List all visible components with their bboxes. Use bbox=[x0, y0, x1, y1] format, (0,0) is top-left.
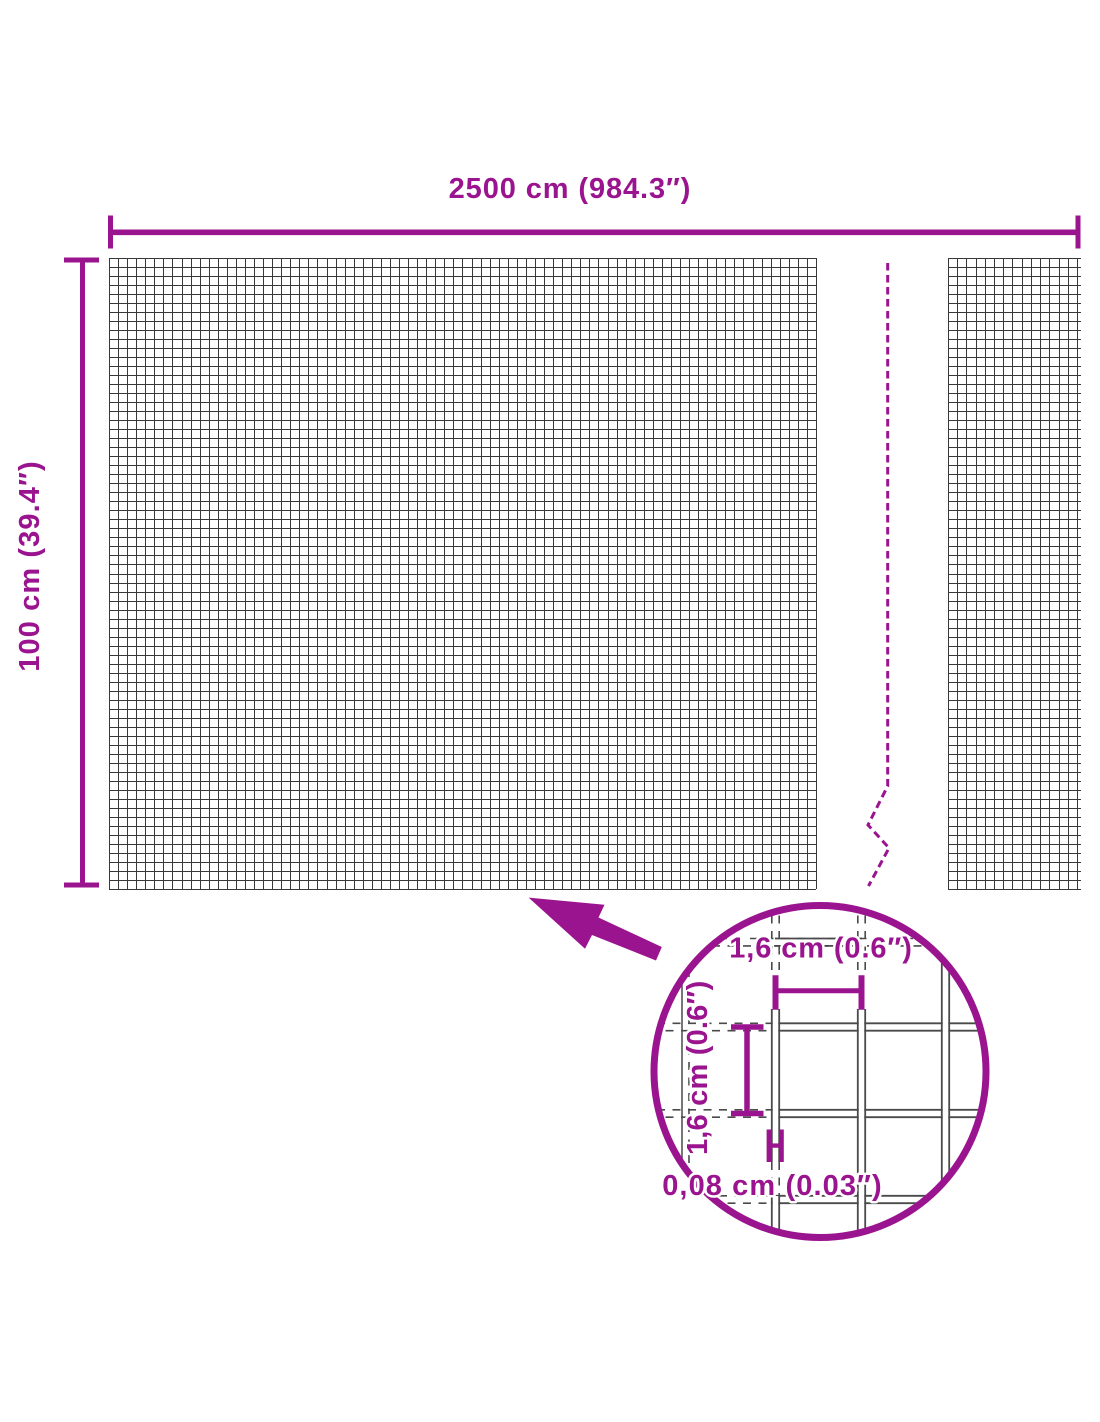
svg-text:0,08 cm (0.03″): 0,08 cm (0.03″) bbox=[662, 1170, 883, 1202]
svg-text:2500 cm (984.3″): 2500 cm (984.3″) bbox=[449, 173, 692, 205]
svg-text:1,6 cm (0.6″): 1,6 cm (0.6″) bbox=[682, 981, 714, 1155]
svg-text:1,6 cm (0.6″): 1,6 cm (0.6″) bbox=[729, 933, 913, 965]
svg-text:100 cm (39.4″): 100 cm (39.4″) bbox=[14, 460, 46, 671]
